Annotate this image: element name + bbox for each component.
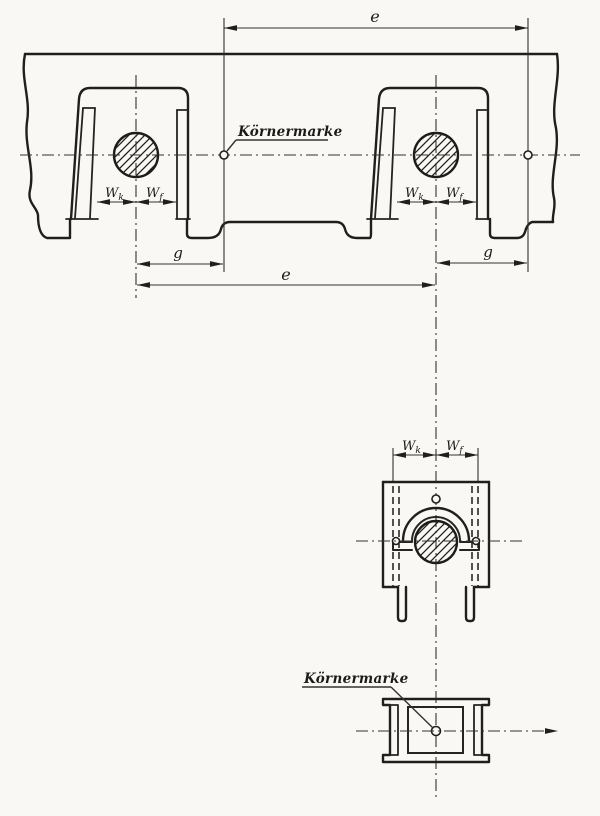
technical-drawing: e Wk Wf Wk Wf g [0, 0, 600, 816]
hole-section-middle [415, 521, 457, 563]
punch-mark-circle-right [524, 151, 532, 159]
dim-label-wf: Wf [446, 439, 464, 456]
punch-mark-label: Körnermarke [303, 671, 409, 687]
arrowhead-right-icon [465, 452, 478, 458]
dim-label-wk: Wk [402, 439, 421, 456]
scanned-technical-figure: e Wk Wf Wk Wf g [0, 0, 600, 816]
dim-e-bottom: e [137, 265, 435, 288]
arrowhead-center-right-icon [123, 199, 136, 205]
section-view-top: e Wk Wf Wk Wf g [20, 7, 580, 298]
arrowhead-right-icon [515, 25, 528, 31]
dim-label-wf: Wf [446, 186, 464, 203]
arrowhead-left-icon [137, 261, 150, 267]
side-view-middle: Wk Wf [356, 439, 524, 621]
arrowhead-right-icon [210, 261, 223, 267]
part-bottom-right-profile [490, 219, 553, 238]
arrowhead-right-icon [163, 199, 176, 205]
arrowhead-right-icon [463, 199, 476, 205]
dim-label-g-left: g [173, 244, 183, 262]
view-direction-arrowhead-icon [545, 728, 558, 734]
wedge-strip-inner-line [390, 108, 395, 218]
part-break-edge-right [553, 54, 558, 222]
die-pocket-left [71, 88, 188, 219]
dim-label-g-right: g [483, 243, 493, 261]
wedge-strip-inner-line [90, 108, 95, 218]
leg-right [466, 587, 474, 621]
leader-line [227, 140, 236, 151]
dim-label-e-top: e [370, 7, 379, 26]
arrowhead-center-right-icon [423, 452, 436, 458]
arrowhead-right-icon [422, 282, 435, 288]
dim-g-right: g [437, 243, 527, 266]
leg-left [398, 587, 406, 621]
dim-label-wf: Wf [146, 186, 164, 203]
punch-mark-annotation-top: Körnermarke [227, 124, 343, 151]
arrowhead-right-icon [514, 260, 527, 266]
arrowhead-center-right-icon [423, 199, 436, 205]
arrowhead-left-icon [137, 282, 150, 288]
punch-mark-circle-left [220, 151, 228, 159]
dim-g-left: g [137, 244, 223, 267]
dim-label-e-bottom: e [281, 265, 290, 284]
part-break-edge-left [24, 54, 70, 238]
arrowhead-left-icon [224, 25, 237, 31]
punch-mark-label: Körnermarke [237, 124, 343, 140]
dim-label-wk: Wk [105, 186, 124, 203]
part-bottom-center-profile [187, 219, 371, 238]
punch-mark-circle-top [432, 495, 440, 503]
dim-e-top: e [224, 7, 528, 31]
arrowhead-left-icon [437, 260, 450, 266]
plan-view-bottom: Körnermarke [302, 671, 558, 762]
dim-label-wk: Wk [405, 186, 424, 203]
die-pocket-right [371, 88, 488, 219]
